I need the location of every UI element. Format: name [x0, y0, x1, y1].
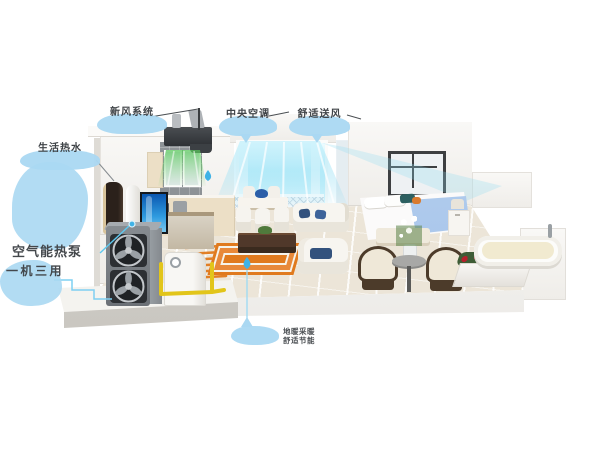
- bedroom-window: [388, 151, 446, 197]
- fresh-air-duct-small: [172, 114, 181, 128]
- curtain-right: [311, 143, 320, 197]
- duct-pole: [198, 108, 200, 130]
- bedroom-window-mullion-v: [412, 154, 414, 188]
- callout-fresh-air: 新风系统: [97, 114, 167, 134]
- right-terrace-wall: [472, 172, 532, 208]
- hot-water-label: 生活热水: [20, 143, 100, 155]
- rug: [207, 243, 302, 275]
- floor-heating-label-line2: 舒适节能: [283, 336, 315, 345]
- bath-faucet: [548, 224, 552, 238]
- bedroom-window-mullion-h: [391, 166, 437, 168]
- patio-table-stem: [407, 266, 411, 292]
- flower-planter-box: [452, 263, 532, 287]
- outdoor-unit-fans: [106, 226, 150, 306]
- kitchen-upper-cabinet: [147, 152, 163, 188]
- callout-central-ac: 中央空调: [219, 116, 277, 136]
- air-diffuser: [190, 144, 212, 153]
- wicker-chair-left: [358, 246, 398, 282]
- hydro-unit-dial: [170, 257, 181, 268]
- kitchen-island: [168, 212, 214, 249]
- comfort-air-label: 舒适送风: [289, 109, 350, 121]
- dining-chair-back-1: [243, 186, 255, 198]
- dining-chair-1: [236, 206, 251, 231]
- kitchen-window-left: [164, 150, 182, 187]
- fresh-air-duct-large: [188, 110, 205, 128]
- dining-centerpiece: [255, 189, 268, 198]
- sofa-pillow-2: [315, 210, 327, 220]
- dining-chair-back-2: [268, 186, 280, 198]
- central-ac-label: 中央空调: [219, 109, 277, 121]
- floor-heating-label-block: 地暖采暖 舒适节能: [283, 327, 315, 346]
- kitchen-window-right: [183, 150, 201, 187]
- coffee-table-decor: [258, 226, 272, 234]
- flower-stems: [396, 212, 422, 246]
- fan-icon: [110, 270, 147, 303]
- callout-floor-heating: [231, 326, 279, 345]
- nightstand-right: [448, 210, 470, 236]
- callout-hot-water: 生活热水: [20, 150, 100, 170]
- heat-pump-label-block: 空气能热泵 一机三用: [12, 241, 82, 279]
- fresh-air-label: 新风系统: [97, 107, 167, 119]
- armchair-cushion: [310, 248, 332, 259]
- outdoor-unit-side: [148, 228, 162, 304]
- heat-pump-home-illustration: 新风系统 中央空调 舒适送风 生活热水 空气能热泵 一机三用 地暖采暖 舒适节能: [0, 0, 600, 450]
- floor-heating-label-line1: 地暖采暖: [283, 327, 315, 336]
- bathtub-water: [482, 242, 554, 259]
- bedside-lamp: [451, 199, 464, 209]
- fan-icon: [110, 234, 147, 267]
- hot-water-balloon: [12, 162, 88, 250]
- coffee-table: [238, 233, 296, 247]
- heat-pump-label-line1: 空气能热泵: [12, 241, 82, 260]
- bed-pillow-orange: [412, 197, 421, 204]
- heat-pump-label-line2: 一机三用: [6, 262, 82, 279]
- callout-comfort-air: 舒适送风: [289, 116, 350, 136]
- sofa-pillow-1: [299, 208, 311, 218]
- dining-chair-3: [274, 206, 289, 231]
- callout-bubble: [231, 326, 279, 345]
